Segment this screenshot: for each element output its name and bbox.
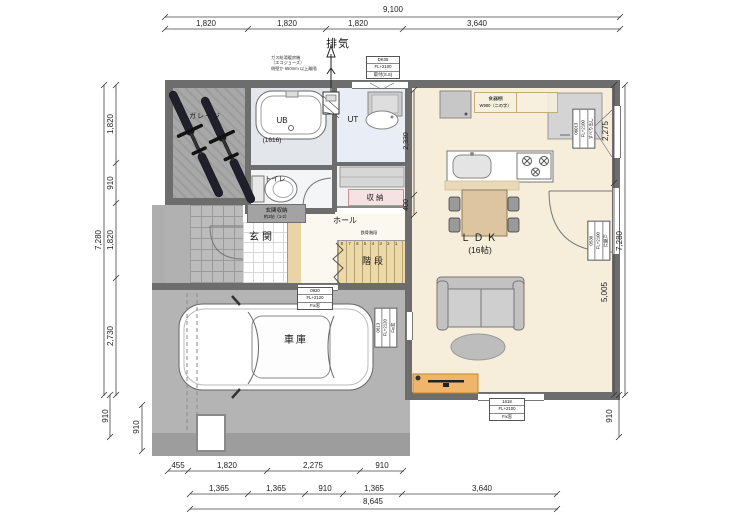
- dim-label: 7,280: [95, 220, 105, 260]
- tv-board: [413, 374, 478, 393]
- stairs-breakline: [333, 243, 343, 284]
- tag-line: FL+2100: [580, 110, 587, 148]
- exhaust-label: 排気: [320, 39, 356, 50]
- stairs-note: 鉄骨階段: [352, 231, 386, 235]
- dim-label: 5,005: [601, 272, 611, 312]
- room-label-closet: 収納: [367, 194, 386, 202]
- dim-label: 910: [300, 485, 350, 493]
- dim-label: 2,275: [602, 111, 612, 151]
- kitchen-sink: [453, 152, 491, 178]
- tag-line: 取付(S.S): [367, 71, 399, 78]
- dim-label: 1,365: [194, 485, 244, 493]
- tag-line: すべり出し: [587, 110, 594, 148]
- tag-line: Fix窓: [389, 309, 396, 347]
- dim-label: 910: [357, 462, 407, 470]
- entrance-storage-note: 約2帖（1-2）: [264, 214, 289, 219]
- room-label-hall: ホール: [322, 217, 368, 225]
- closet-counter: [340, 167, 404, 187]
- exhaust-arrow: [327, 46, 335, 92]
- tag-line: FL+2100: [490, 405, 524, 412]
- dim-label: 1,820: [181, 20, 231, 28]
- tag-line: FL+2100: [367, 63, 399, 70]
- dim-label: 1,365: [349, 485, 399, 493]
- stair-numbers: 8 7 6 5 4 3 2 1: [338, 242, 402, 247]
- dim-label: 910: [102, 396, 112, 436]
- dim-label: 8,645: [348, 498, 398, 506]
- closet-label-box: 収納: [348, 189, 404, 206]
- dim-label: 1,820: [107, 104, 117, 144]
- dim-label: 2,730: [107, 316, 117, 356]
- dim-label: 9,100: [368, 6, 418, 14]
- window-tag-stairs: 0920 FL+2120 Fix窓: [297, 287, 333, 310]
- window-tag-garage: 0613 FL+2120 Fix窓: [374, 308, 397, 348]
- tag-line: FL+2120: [298, 294, 332, 301]
- room-label-entrance: 玄関: [237, 233, 287, 243]
- window-tag-ldk-bottom: 1618 FL+2100 Fix窓: [489, 398, 525, 421]
- rug: [451, 334, 505, 360]
- room-label-car-garage: 車庫: [268, 336, 324, 346]
- dim-label: 1,820: [107, 220, 117, 260]
- dim-label: 2,275: [288, 462, 338, 470]
- dim-label: 1,820: [262, 20, 312, 28]
- tag-line: Fix窓: [298, 302, 332, 309]
- stove: [517, 153, 551, 179]
- door-tag-living: 0530 FL+2100 片開戸: [587, 221, 610, 261]
- room-label-bath-size: (1616): [252, 138, 292, 145]
- dim-label: 3,640: [452, 20, 502, 28]
- dim-label: 7,280: [616, 221, 626, 261]
- room-label-stairs: 階段: [352, 257, 396, 266]
- dim-label: 455: [153, 462, 203, 470]
- gas-note-line: 側壁か 650mm 以上離隔: [271, 66, 323, 71]
- dim-label: 2,330: [403, 121, 413, 161]
- dim-label: 1,820: [202, 462, 252, 470]
- dim-label: 910: [133, 407, 143, 447]
- tag-line: FL+2100: [595, 222, 602, 260]
- entrance-storage-box: 玄関収納 約2帖（1-2）: [247, 204, 306, 223]
- dining-table: [462, 190, 507, 236]
- washbasin: [366, 111, 398, 129]
- tag-line: Fix窓: [490, 413, 524, 420]
- dim-label: 3,640: [457, 485, 507, 493]
- window-tag-kitchen: 06013 FL+2100 すべり出し: [572, 109, 595, 149]
- refrigerator: [440, 91, 471, 118]
- dim-label: 1,365: [251, 485, 301, 493]
- bicycles: [159, 86, 265, 209]
- room-label-toilet: トイレ: [255, 176, 295, 183]
- window-tag-ut-top: DK05 FL+2100 取付(S.S): [366, 56, 400, 79]
- bathtub: [256, 91, 326, 139]
- room-label-bath: UB: [262, 117, 302, 125]
- water-heater: [323, 92, 339, 118]
- car: [179, 296, 373, 398]
- floor-plan: DK05 FL+2100 取付(S.S) 0920 FL+2120 Fix窓 1…: [0, 0, 735, 516]
- dim-label: 910: [107, 163, 117, 203]
- dish-shelf-box: 食器棚 W900（二の字）: [474, 92, 558, 113]
- room-label-ldk-size: (16帖): [455, 246, 505, 255]
- tag-line: 片開戸: [602, 222, 609, 260]
- room-label-utility: UT: [338, 116, 368, 124]
- gas-note: ガス給湯暖房機 （エコジョーズ） 側壁か 650mm 以上離隔: [271, 55, 323, 71]
- tag-line: FL+2120: [382, 309, 389, 347]
- sofa: [437, 277, 524, 330]
- room-label-ldk: ＬＤＫ: [450, 234, 510, 244]
- dim-label: 400: [403, 185, 413, 225]
- dish-shelf-note: W900（二の字）: [480, 103, 512, 108]
- dim-label: 1,820: [333, 20, 383, 28]
- room-label-bike-garage: ガレージ: [175, 113, 235, 120]
- dim-label: 910: [606, 396, 616, 436]
